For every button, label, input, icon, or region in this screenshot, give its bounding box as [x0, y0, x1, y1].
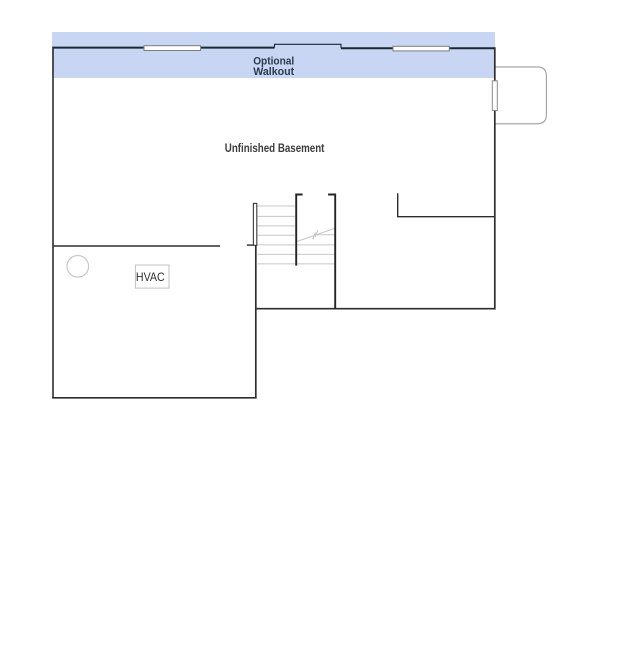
svg-text:Walkout: Walkout [253, 66, 294, 78]
svg-text:Unfinished Basement: Unfinished Basement [225, 141, 325, 155]
svg-text:HVAC: HVAC [136, 271, 165, 284]
